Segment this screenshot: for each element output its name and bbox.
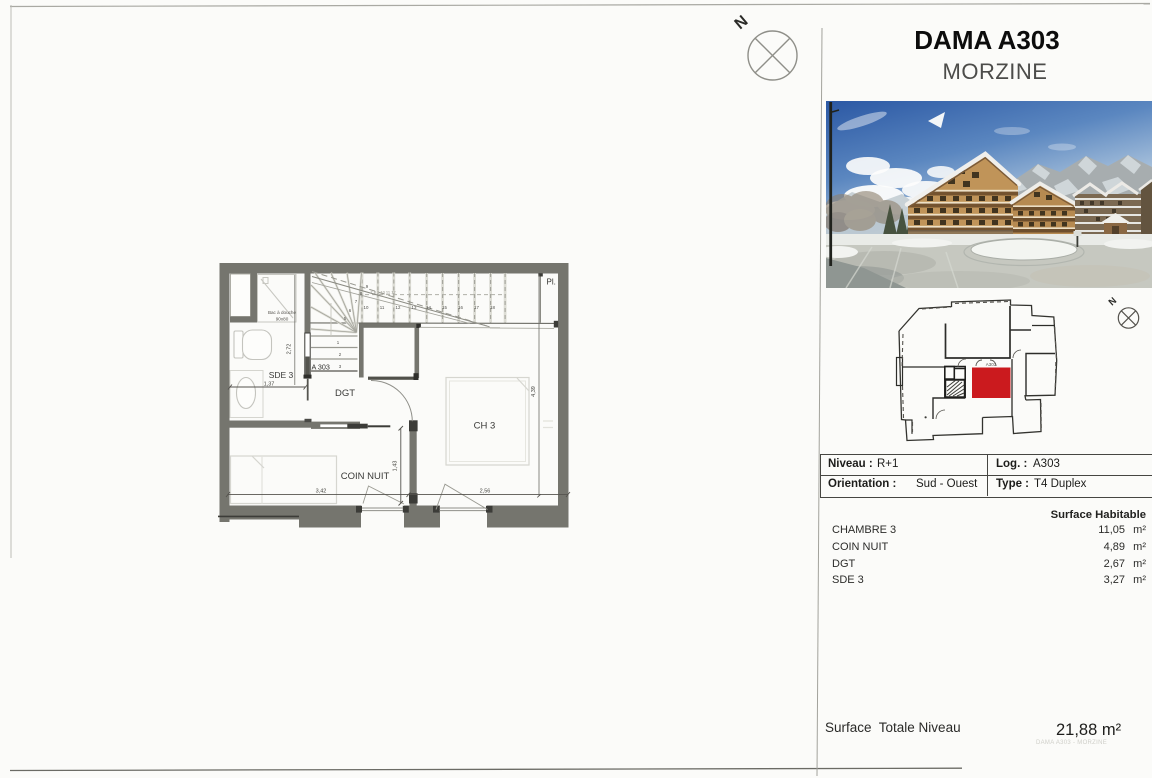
svg-text:3,42: 3,42 (316, 489, 327, 495)
svg-text:COIN NUIT: COIN NUIT (341, 471, 390, 482)
svg-text:17: 17 (474, 305, 479, 310)
svg-text:13: 13 (412, 305, 417, 310)
svg-text:1: 1 (337, 340, 340, 345)
svg-text:N: N (732, 13, 752, 33)
svg-text:Pl.: Pl. (547, 278, 556, 287)
svg-text:DGT: DGT (335, 388, 355, 399)
svg-text:6: 6 (349, 308, 352, 313)
svg-text:1,43: 1,43 (393, 461, 399, 472)
svg-text:12: 12 (396, 305, 401, 310)
svg-text:10: 10 (364, 305, 369, 310)
svg-text:A303: A303 (986, 362, 997, 367)
svg-text:90x80: 90x80 (276, 317, 289, 322)
svg-text:18: 18 (490, 305, 495, 310)
svg-text:2,56: 2,56 (480, 489, 491, 495)
svg-text:7: 7 (355, 299, 358, 304)
svg-text:Bac à douche: Bac à douche (268, 310, 297, 315)
svg-text:2: 2 (339, 352, 342, 357)
svg-text:11: 11 (380, 305, 385, 310)
svg-text:9: 9 (366, 284, 369, 289)
svg-text:CH 3: CH 3 (474, 421, 496, 432)
svg-text:16: 16 (458, 305, 463, 310)
svg-text:7 8 9 10 11 12: 7 8 9 10 11 12 (370, 290, 396, 295)
svg-text:3: 3 (339, 364, 342, 369)
svg-text:2,72: 2,72 (287, 344, 293, 355)
svg-text:N: N (1107, 295, 1120, 308)
svg-text:15: 15 (442, 305, 447, 310)
svg-text:SDE 3: SDE 3 (269, 370, 294, 380)
svg-text:4,39: 4,39 (531, 386, 537, 397)
svg-text:A 303: A 303 (312, 363, 330, 372)
svg-text:14: 14 (426, 305, 431, 310)
